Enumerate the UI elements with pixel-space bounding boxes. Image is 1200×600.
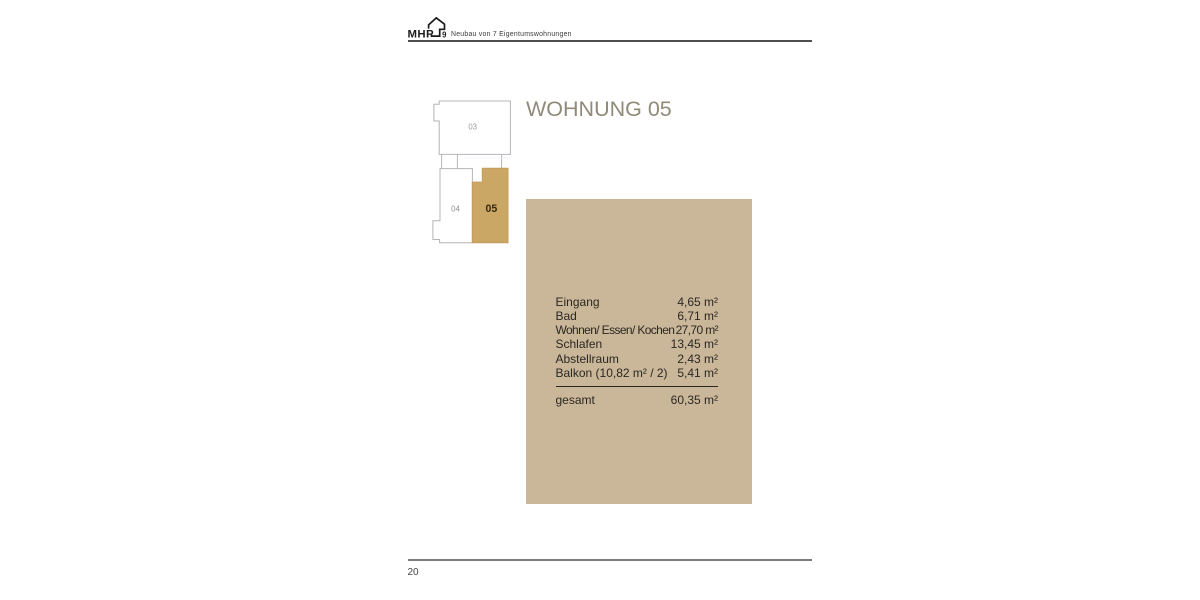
svg-text:03: 03 — [468, 123, 477, 132]
svg-text:05: 05 — [486, 203, 498, 215]
svg-text:MHP: MHP — [408, 29, 435, 41]
svg-text:04: 04 — [451, 204, 460, 213]
svg-text:9: 9 — [442, 30, 447, 39]
